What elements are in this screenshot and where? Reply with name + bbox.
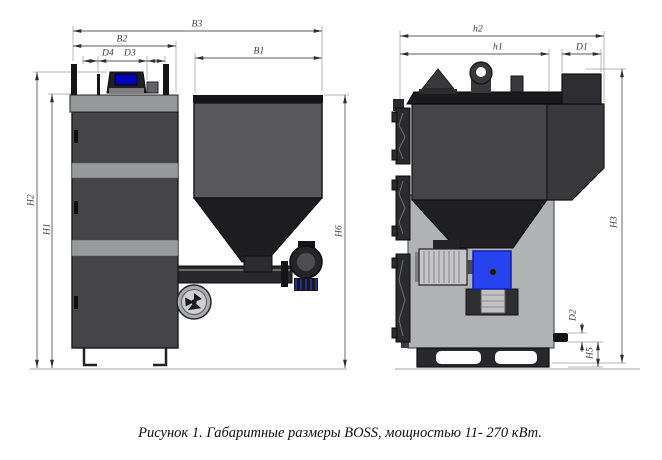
- dim-label-B1: B1: [254, 47, 265, 57]
- dim-label-B2: B2: [117, 35, 128, 45]
- dim-label-H1: H1: [43, 223, 53, 235]
- water-pipe-left: [71, 64, 77, 95]
- control-panel-base: [109, 88, 144, 93]
- sensor-pipe: [97, 74, 100, 95]
- boiler-leg-left: [84, 348, 97, 365]
- boiler-body: [72, 112, 178, 348]
- front-view-drawing: [30, 64, 347, 369]
- burner-shaft: [467, 260, 473, 274]
- safety-valve-wedge: [422, 69, 454, 89]
- funnel-neck-box: [244, 256, 272, 272]
- auger-flange: [281, 261, 288, 287]
- boiler-upper-body-side: [412, 104, 547, 200]
- dim-label-D1: D1: [576, 43, 588, 53]
- flue-stub-front: [147, 82, 158, 93]
- top-stub-pipe: [511, 76, 523, 92]
- figure-caption: Рисунок 1. Габаритные размеры BOSS, мощн…: [20, 425, 660, 442]
- door-handle-middle: [74, 201, 78, 214]
- control-panel-screen: [115, 74, 137, 85]
- flue-housing: [547, 104, 604, 200]
- base-cutout-right: [495, 351, 537, 364]
- hopper-body: [194, 103, 322, 198]
- lifting-ring-hole: [476, 67, 486, 77]
- burner-motor: [419, 249, 467, 285]
- water-pipe-right: [163, 64, 169, 95]
- burner-bolt: [490, 269, 497, 276]
- drain-pipe-stub: [553, 333, 568, 342]
- boiler-band-lower: [72, 240, 178, 256]
- side-view-drawing: [392, 62, 640, 369]
- dim-label-H2: H2: [27, 194, 37, 206]
- boiler-top-plate: [70, 95, 178, 112]
- auger-motor-hub: [297, 253, 315, 271]
- boiler-leg-right: [153, 348, 166, 365]
- boiler-band-upper: [72, 163, 178, 178]
- front-extension-lines: [33, 26, 349, 95]
- dim-label-h1-side: h1: [493, 43, 503, 53]
- door-handle-top: [74, 130, 78, 143]
- door-hinges: [392, 108, 410, 342]
- dim-label-D3: D3: [124, 49, 136, 59]
- hopper-rim: [193, 95, 323, 103]
- base-cutout-left: [436, 351, 481, 364]
- fan-hub: [191, 299, 196, 304]
- door-handle-bottom: [74, 296, 78, 309]
- dim-label-D2: D2: [569, 309, 579, 321]
- technical-drawing: [0, 0, 662, 460]
- safety-valve-base: [419, 89, 457, 94]
- dim-label-H5: H5: [586, 347, 596, 359]
- figure-canvas: B3 B2 D4 D3 B1 H2 H1 H6 h2 h1 D1 H3 D2 H…: [0, 0, 662, 460]
- auger-tube: [176, 266, 292, 283]
- dim-label-D4: D4: [102, 49, 114, 59]
- dim-label-H6: H6: [335, 225, 345, 237]
- dim-label-h2-side: h2: [473, 25, 483, 35]
- chimney: [562, 74, 601, 104]
- dim-label-B3: B3: [192, 20, 203, 30]
- dim-label-H3: H3: [610, 216, 620, 228]
